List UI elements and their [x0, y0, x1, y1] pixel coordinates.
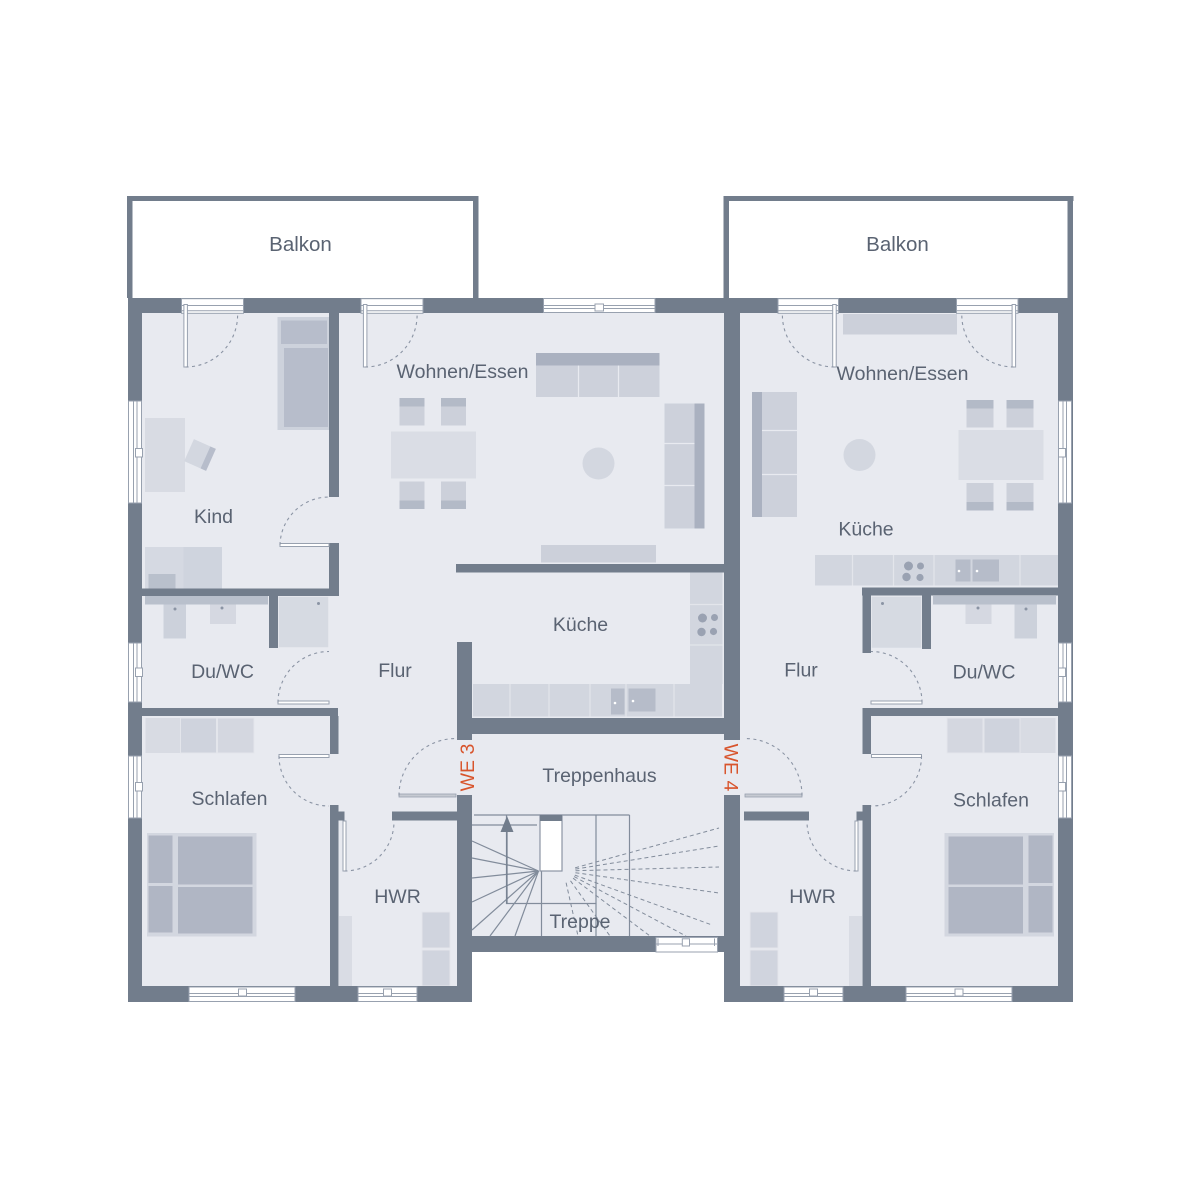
svg-text:Du/WC: Du/WC: [953, 662, 1016, 684]
svg-text:Küche: Küche: [838, 519, 893, 541]
svg-text:Kind: Kind: [194, 506, 233, 528]
svg-text:Schlafen: Schlafen: [192, 788, 268, 810]
svg-text:Küche: Küche: [553, 614, 608, 636]
svg-text:Schlafen: Schlafen: [953, 790, 1029, 812]
svg-text:Flur: Flur: [378, 660, 412, 682]
svg-text:HWR: HWR: [789, 886, 836, 908]
svg-text:Treppenhaus: Treppenhaus: [542, 765, 656, 787]
svg-text:WE 4: WE 4: [720, 744, 742, 792]
svg-text:Du/WC: Du/WC: [191, 661, 254, 683]
svg-text:Balkon: Balkon: [269, 233, 332, 256]
svg-text:Treppe: Treppe: [549, 911, 610, 933]
svg-text:Wohnen/Essen: Wohnen/Essen: [837, 363, 969, 385]
svg-text:WE 3: WE 3: [457, 744, 479, 792]
svg-text:Wohnen/Essen: Wohnen/Essen: [397, 361, 529, 383]
svg-text:HWR: HWR: [374, 886, 421, 908]
svg-text:Balkon: Balkon: [866, 233, 929, 256]
svg-text:Flur: Flur: [784, 660, 818, 682]
